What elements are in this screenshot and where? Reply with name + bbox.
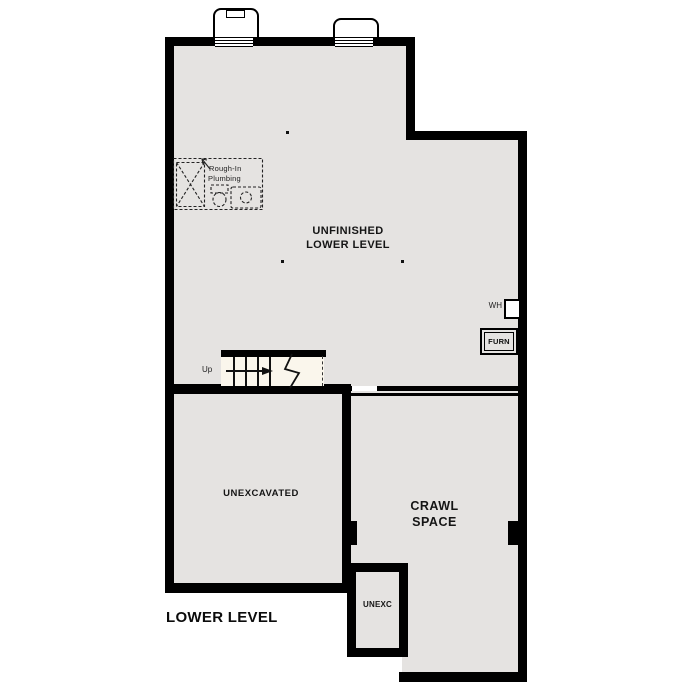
stair-direction-line [226,370,264,372]
unexc-fill [352,568,403,652]
wall-unexcavated-bottom [165,583,351,593]
crawl-label-line2: SPACE [351,515,518,531]
stair-dashed-edge [322,356,323,386]
furnace-box: FURN [480,328,518,355]
unexcavated-label: UNEXCAVATED [176,488,346,499]
crawl-space-label: CRAWL SPACE [351,499,518,530]
unfinished-label-line1: UNFINISHED [248,225,448,239]
wall-step-vertical [406,37,415,140]
wall-top [165,37,415,46]
wall-unexc-right [399,563,408,657]
wall-unexc-left [347,563,356,657]
column-dot [401,260,404,263]
furnace-label: FURN [484,332,514,351]
wall-step-horizontal [406,131,527,140]
wall-unexc-bottom [347,648,408,657]
floor-plan-canvas: Up Rough-In Plumbing WH FURN UNFINISHED … [0,0,687,687]
beam-line-bottom [347,393,527,396]
column-dot [286,131,289,134]
unfinished-lower-level-label: UNFINISHED LOWER LEVEL [248,225,448,252]
wall-crawl-bottom [399,672,527,682]
crawl-space-fill-upper [347,390,522,567]
water-heater-box [504,299,521,319]
rough-in-label-line2: Plumbing [208,174,241,183]
stairs-up-label: Up [202,365,212,374]
column-dot [281,260,284,263]
wall-right [518,131,527,682]
plan-title: LOWER LEVEL [166,609,278,626]
rough-in-label-line1: Rough-In [209,164,241,173]
crawl-label-line1: CRAWL [351,499,518,515]
unfinished-label-line2: LOWER LEVEL [248,239,448,253]
crawl-space-fill-lower [402,560,522,676]
unexc-label: UNEXC [352,600,403,609]
stair-break-line [277,350,309,390]
stair-direction-arrowhead [262,367,273,375]
window-left [215,37,253,47]
unfinished-level-fill-upper [170,42,410,137]
window-right [335,37,373,47]
crawl-access-gap [352,386,377,391]
window-well-left-step [226,10,245,18]
wall-left [165,37,174,593]
water-heater-label: WH [478,301,502,310]
stair-top-wall [221,350,326,357]
